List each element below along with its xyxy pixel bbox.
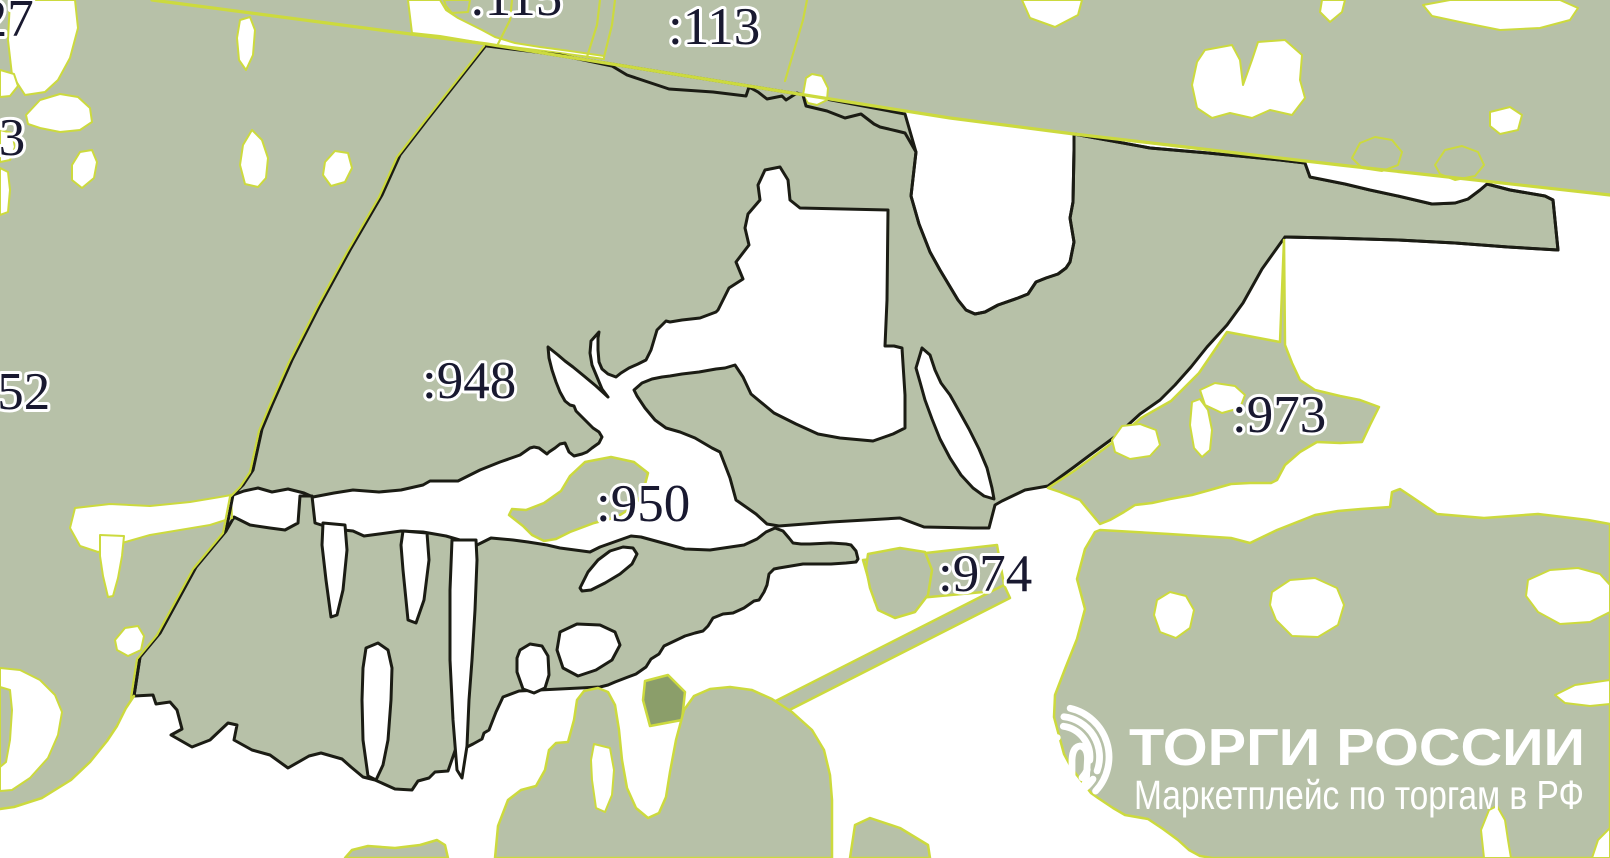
- svg-text::948: :948: [422, 352, 516, 410]
- svg-text:Маркетплейс по торгам в РФ: Маркетплейс по торгам в РФ: [1134, 772, 1584, 818]
- svg-text::113: :113: [668, 0, 760, 56]
- svg-text::950: :950: [596, 475, 690, 533]
- svg-text::115: :115: [470, 0, 562, 27]
- svg-text::974: :974: [938, 545, 1032, 603]
- svg-text::3: :3: [0, 109, 25, 167]
- svg-text::952: :952: [0, 363, 50, 421]
- svg-text::973: :973: [1232, 386, 1326, 444]
- svg-text::27: :27: [0, 0, 34, 48]
- svg-text:ТОРГИ РОССИИ: ТОРГИ РОССИИ: [1129, 719, 1585, 777]
